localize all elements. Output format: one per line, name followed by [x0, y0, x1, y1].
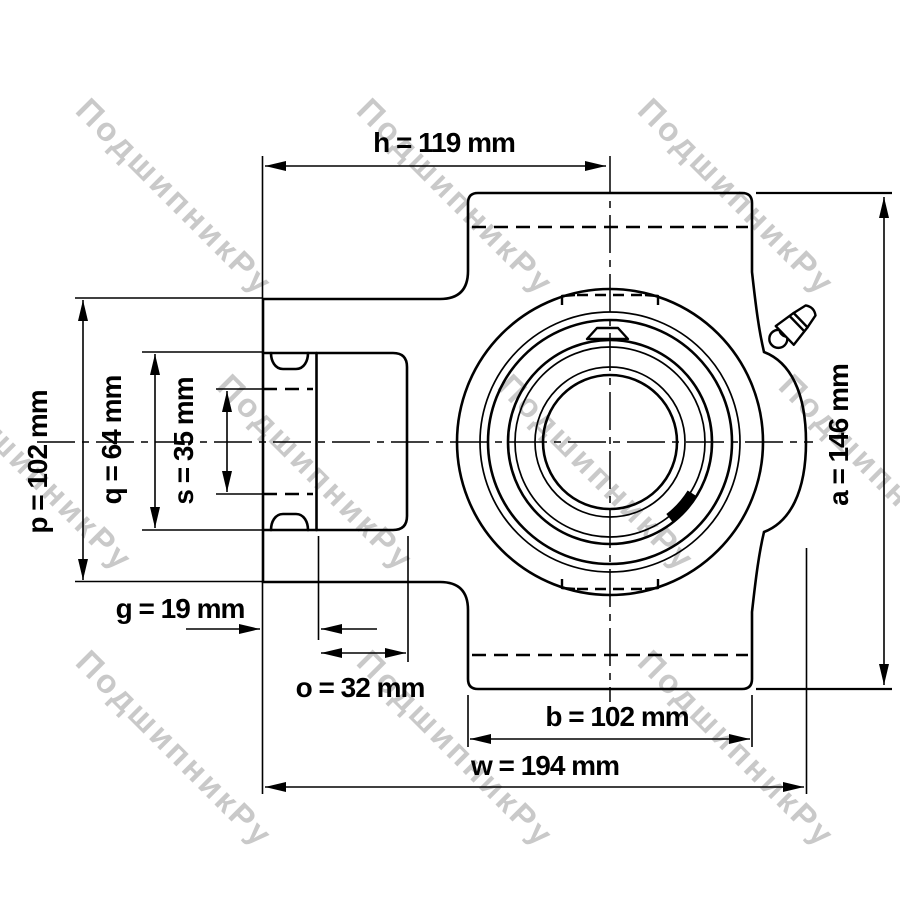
- dimension-label-g: g = 19 mm: [116, 593, 245, 624]
- grease-fitting-icon: [764, 299, 821, 356]
- locking-cam-mark: [670, 493, 693, 518]
- drawing-canvas: ПодшипникРу ПодшипникРу ПодшипникРу Подш…: [0, 0, 900, 900]
- dimension-g: g = 19 mm: [116, 536, 377, 640]
- watermark-text: ПодшипникРу: [631, 91, 843, 303]
- watermark-text: ПодшипникРу: [69, 643, 281, 855]
- dimension-label-b: b = 102 mm: [545, 701, 688, 732]
- cover-hook-bottom-right: [645, 579, 658, 589]
- cover-hook-top-left: [562, 295, 575, 305]
- dimension-label-o: o = 32 mm: [296, 672, 425, 703]
- cover-hook-top-right: [645, 295, 658, 305]
- sleeve-groove-bottom: [271, 514, 308, 530]
- watermark-layer: ПодшипникРу ПодшипникРу ПодшипникРу Подш…: [0, 91, 900, 855]
- sleeve-groove-top: [271, 353, 308, 369]
- dimension-label-a: a = 146 mm: [823, 364, 854, 506]
- dimension-p: p = 102 mm: [22, 298, 262, 582]
- dimension-label-q: q = 64 mm: [96, 376, 127, 505]
- watermark-text: ПодшипникРу: [350, 91, 562, 303]
- watermark-text: ПодшипникРу: [631, 643, 843, 855]
- dimension-label-p: p = 102 mm: [22, 390, 53, 533]
- watermark-text: ПодшипникРу: [69, 91, 281, 303]
- bearing-unit-drawing: ПодшипникРу ПодшипникРу ПодшипникРу Подш…: [0, 0, 900, 900]
- dimension-label-w: w = 194 mm: [470, 750, 619, 781]
- set-screw: [587, 328, 628, 339]
- dimension-label-h: h = 119 mm: [373, 127, 515, 158]
- dimension-label-s: s = 35 mm: [168, 377, 199, 504]
- cover-hook-bottom-left: [562, 579, 575, 589]
